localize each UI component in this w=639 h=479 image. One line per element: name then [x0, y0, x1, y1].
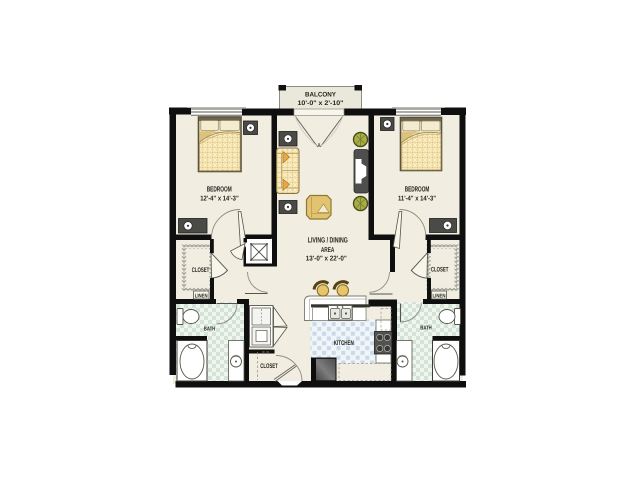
- svg-text:AREA: AREA: [321, 247, 335, 254]
- svg-text:12'-4" x 14'-3": 12'-4" x 14'-3": [200, 196, 239, 203]
- svg-text:11'-4" x 14'-3": 11'-4" x 14'-3": [398, 196, 436, 203]
- svg-text:CLOSET: CLOSET: [260, 363, 278, 370]
- svg-text:BATH: BATH: [204, 327, 216, 333]
- svg-text:KITCHEN: KITCHEN: [334, 340, 354, 347]
- svg-text:LINEN: LINEN: [433, 293, 446, 299]
- svg-text:BEDROOM: BEDROOM: [207, 185, 232, 194]
- svg-text:BEDROOM: BEDROOM: [405, 185, 430, 194]
- svg-text:CLOSET: CLOSET: [192, 267, 210, 274]
- svg-text:10'-0" x 2'-10": 10'-0" x 2'-10": [298, 100, 344, 107]
- svg-text:CLOSET: CLOSET: [431, 267, 449, 274]
- svg-text:BALCONY: BALCONY: [305, 92, 337, 99]
- svg-text:13'-0" x 22'-0": 13'-0" x 22'-0": [306, 255, 347, 262]
- svg-text:BATH: BATH: [420, 326, 432, 332]
- svg-text:LIVING / DINING: LIVING / DINING: [308, 236, 348, 245]
- svg-text:LINEN: LINEN: [195, 293, 208, 299]
